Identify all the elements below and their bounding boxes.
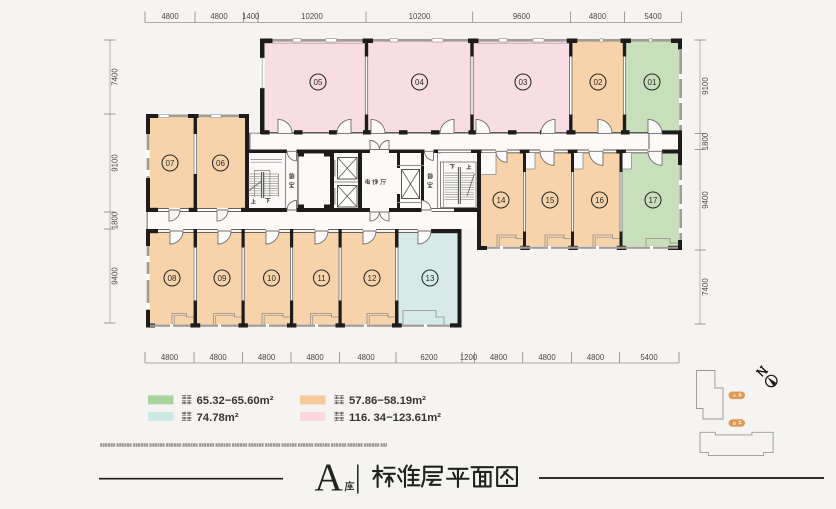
svg-text:6200: 6200 <box>420 353 438 362</box>
svg-text:10200: 10200 <box>409 12 431 21</box>
svg-text:4800: 4800 <box>490 353 508 362</box>
svg-text:1800: 1800 <box>701 132 710 150</box>
svg-text:16: 16 <box>595 196 604 205</box>
svg-text:1800: 1800 <box>111 211 120 229</box>
svg-text:74.78m²: 74.78m² <box>197 412 239 424</box>
svg-text:4800: 4800 <box>589 12 607 21</box>
svg-text:5400: 5400 <box>644 12 662 21</box>
svg-text:17: 17 <box>649 196 658 205</box>
svg-text:1200: 1200 <box>460 353 478 362</box>
svg-text:15: 15 <box>546 196 555 205</box>
svg-text:13: 13 <box>426 274 435 283</box>
svg-text:4800: 4800 <box>161 12 179 21</box>
svg-text:116. 34−123.61m²: 116. 34−123.61m² <box>349 412 441 424</box>
svg-text:A: A <box>315 456 343 499</box>
svg-text:4800: 4800 <box>161 353 179 362</box>
svg-text:65.32−65.60m²: 65.32−65.60m² <box>197 395 274 407</box>
svg-text:9100: 9100 <box>701 77 710 95</box>
svg-text:B: B <box>733 421 736 427</box>
svg-text:4800: 4800 <box>306 353 324 362</box>
svg-text:7400: 7400 <box>701 278 710 296</box>
svg-text:09: 09 <box>218 274 227 283</box>
svg-text:4800: 4800 <box>538 353 556 362</box>
svg-text:06: 06 <box>216 159 225 168</box>
svg-text:10200: 10200 <box>301 12 323 21</box>
svg-text:01: 01 <box>648 78 657 87</box>
svg-text:4800: 4800 <box>357 353 375 362</box>
svg-text:1400: 1400 <box>242 12 260 21</box>
svg-text:4800: 4800 <box>587 353 605 362</box>
svg-text:08: 08 <box>168 274 177 283</box>
svg-text:4800: 4800 <box>210 12 228 21</box>
svg-text:03: 03 <box>519 78 528 87</box>
svg-text:4800: 4800 <box>258 353 276 362</box>
svg-text:12: 12 <box>368 274 377 283</box>
svg-text:14: 14 <box>497 196 506 205</box>
svg-text:07: 07 <box>166 159 175 168</box>
svg-text:10: 10 <box>267 274 276 283</box>
svg-text:04: 04 <box>415 78 424 87</box>
svg-text:7400: 7400 <box>111 68 120 86</box>
svg-text:02: 02 <box>594 78 603 87</box>
svg-text:9600: 9600 <box>513 12 531 21</box>
svg-text:5400: 5400 <box>640 353 658 362</box>
svg-text:9400: 9400 <box>111 267 120 285</box>
svg-text:9100: 9100 <box>111 154 120 172</box>
svg-text:05: 05 <box>314 78 323 87</box>
svg-text:11: 11 <box>317 274 326 283</box>
svg-text:9400: 9400 <box>701 191 710 209</box>
svg-text:4800: 4800 <box>209 353 227 362</box>
svg-text:57.86−58.19m²: 57.86−58.19m² <box>349 395 426 407</box>
